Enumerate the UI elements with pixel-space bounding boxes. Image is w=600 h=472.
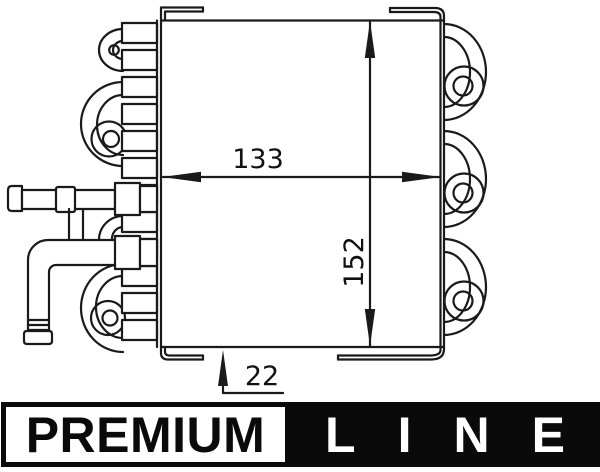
premium-line-banner: PREMIUM LINE [0, 402, 600, 467]
left-tube-stack [122, 23, 157, 340]
dim-height-label: 152 [339, 236, 370, 288]
pipe-bracket [69, 209, 83, 241]
premium-badge: PREMIUM [1, 402, 290, 467]
right-u-bends [444, 24, 486, 335]
dim-width-label: 133 [232, 144, 284, 175]
line-badge: LINE [290, 402, 600, 467]
mounting-tab-bottom-right [338, 347, 444, 360]
dim-offset-label: 22 [245, 361, 279, 392]
mounting-tab-top-right [390, 8, 444, 21]
line-label: LINE [325, 410, 600, 460]
technical-drawing: 133 152 22 [0, 0, 600, 402]
mounting-tab-top-left [161, 8, 203, 21]
product-drawing-page: 133 152 22 PREMIUM LINE [0, 0, 600, 472]
heat-exchanger-body [157, 21, 444, 348]
dimension-offset: 22 [218, 350, 283, 393]
mounting-tab-bottom-left [161, 347, 203, 360]
premium-label: PREMIUM [26, 410, 266, 460]
